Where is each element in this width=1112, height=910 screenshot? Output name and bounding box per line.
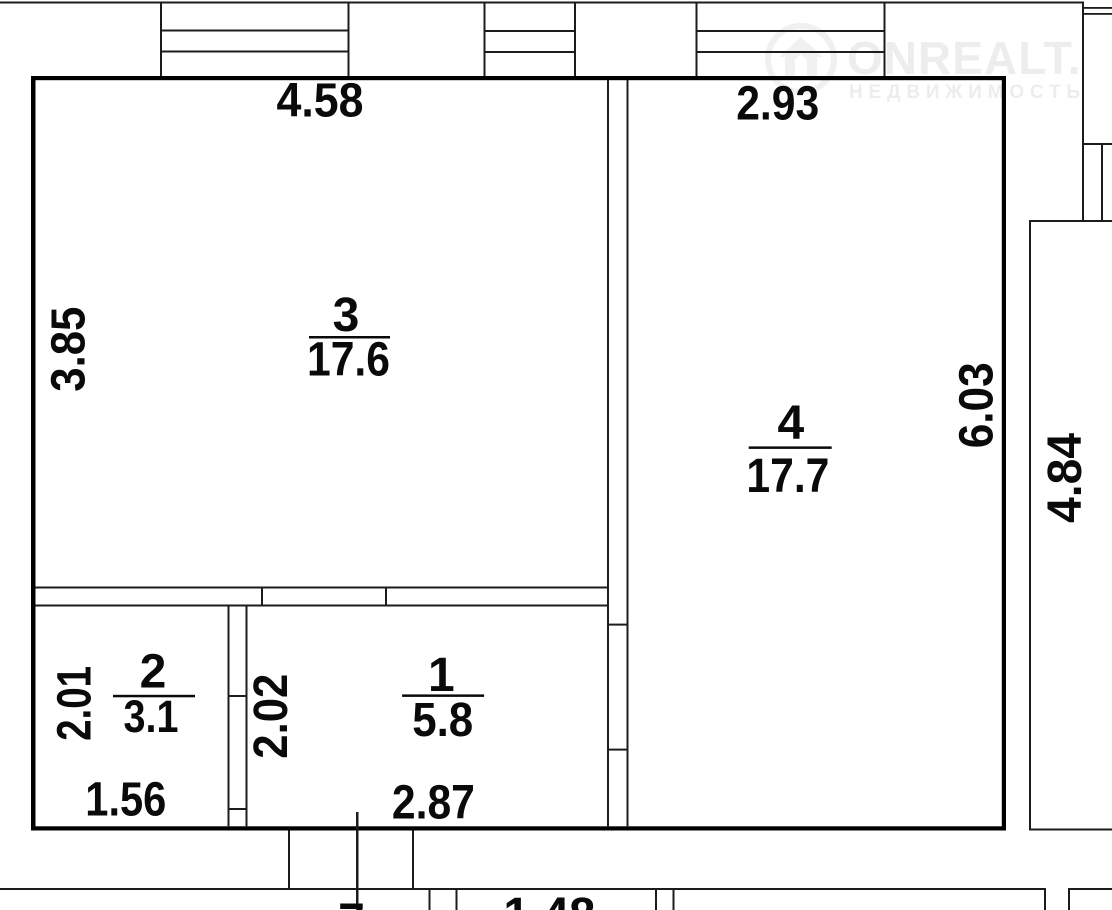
svg-text:1.56: 1.56 (85, 774, 166, 827)
svg-text:4: 4 (777, 397, 804, 450)
svg-text:3.1: 3.1 (124, 691, 179, 742)
svg-text:6.03: 6.03 (951, 362, 1004, 448)
svg-text:2.01: 2.01 (49, 666, 102, 741)
svg-text:2.93: 2.93 (736, 78, 819, 131)
svg-text:5.8: 5.8 (412, 694, 473, 747)
svg-text:7: 7 (338, 895, 365, 910)
svg-text:НЕДВИЖИМОСТЬ: НЕДВИЖИМОСТЬ (849, 82, 1086, 103)
svg-text:17.6: 17.6 (307, 334, 390, 387)
svg-text:3.85: 3.85 (42, 307, 95, 392)
svg-text:17.7: 17.7 (746, 450, 829, 503)
svg-text:1.48: 1.48 (503, 889, 595, 910)
svg-text:2.87: 2.87 (392, 777, 475, 830)
svg-text:4.84: 4.84 (1039, 433, 1092, 523)
svg-text:2.02: 2.02 (245, 674, 298, 759)
svg-text:4.58: 4.58 (277, 75, 364, 128)
